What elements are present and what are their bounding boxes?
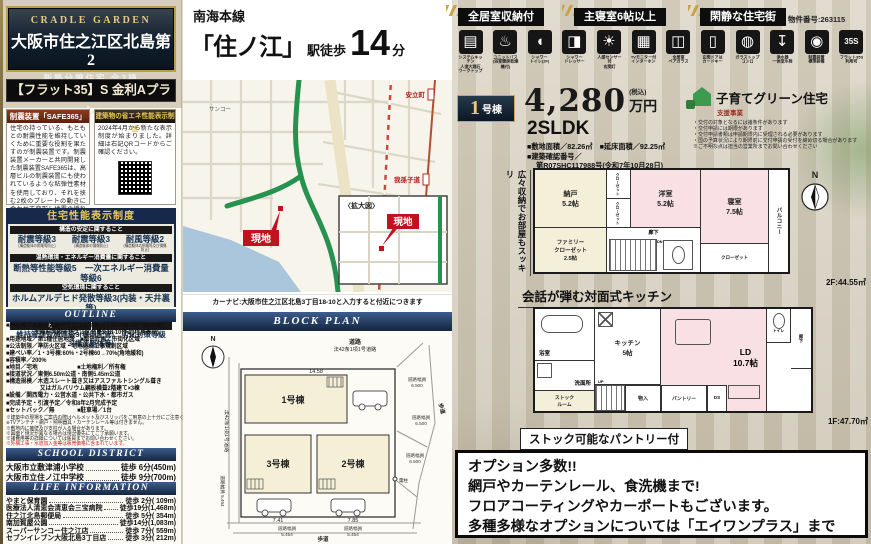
- outline-body: ■所在地／大阪府大阪市住之江区北島三丁目14番7の一部(地番) 大阪府大阪市住之…: [6, 323, 178, 416]
- pair-glass-icon: ◫: [666, 30, 690, 54]
- dim-top: 14.58: [309, 369, 323, 375]
- feature-shower-dresser: ◨シャワー ドレッサー: [559, 30, 590, 76]
- outline-line: 又はガルバリウム鋼板横葺2階建て×3棟: [6, 386, 168, 393]
- flat35s-icon: 35S: [839, 30, 863, 54]
- outline-line: ■地目／宅地 ■土地権利／所有権: [6, 365, 168, 372]
- qr-code: [118, 161, 152, 195]
- stairs-1f: UP: [595, 385, 625, 411]
- feature-sensor-light: ☀人感センサー付 玄関灯: [594, 30, 625, 76]
- toilet-label: トイレ: [767, 329, 790, 334]
- road-top-label: 道路: [349, 338, 362, 346]
- faucet-icon: ↧: [770, 30, 794, 54]
- outline-notes: ※建築中の現場をご案内の際はヘルメット及びスリッパをご用意の上十分にご注意くださ…: [6, 416, 178, 448]
- station-label-anryucho: 安立町: [406, 90, 426, 99]
- building-2-label: 2号棟: [341, 458, 365, 469]
- outline-line: ■完成予定・引渡予定／令和8年2月完成予定: [6, 401, 168, 408]
- station-label-abikomichi: 我孫子道: [394, 175, 421, 184]
- outline-line: ■構造規模／木造スレート葺き又はアスファルトシングル葺き: [6, 379, 168, 386]
- feature-label: ガラストップ コンロ: [734, 55, 761, 64]
- utility-pole-label: 電柱: [399, 477, 408, 484]
- life-row: セブンイレブン大阪北島3丁目店徒歩 3分( 212m): [6, 535, 176, 543]
- school-district-header: SCHOOL DISTRICT: [6, 448, 176, 461]
- hall-2f: 廊下 DN: [607, 228, 701, 272]
- feature-label: フラット35S 利用可: [838, 55, 865, 64]
- outline-line: ■用途地域／第1種住居地域 ■都市計画／市街化区域: [6, 337, 168, 344]
- svg-text:道路幅員 5.454: 道路幅員 5.454: [219, 475, 226, 507]
- feature-glass-top-stove: ◍ガラストップ コンロ: [732, 30, 763, 76]
- performance-grades: 耐震等級3(構造躯体の倒壊等防止) 耐震等級3(構造躯体の損傷防止) 耐風等級2…: [10, 235, 172, 253]
- leader-dots: [86, 480, 119, 481]
- hall-label: 廊下: [607, 229, 700, 236]
- room-toilet-1f: トイレ: [767, 309, 791, 343]
- toilet-icon: ◖: [528, 30, 552, 54]
- feature-flat35s: 35Sフラット35S 利用可: [836, 30, 867, 76]
- feature-shower-toilet: ◖シャワー トイレ(2F): [524, 30, 555, 76]
- map-inset: 〈拡大図〉 現地: [339, 196, 447, 284]
- options-line: オプション多数!!: [468, 457, 855, 477]
- plan2f-caption-vertical: 広々収納でお部屋もスッキリ: [504, 170, 531, 276]
- property-title: 大阪市住之江区北島第2: [8, 28, 174, 70]
- leader-dots: [108, 539, 123, 540]
- performance-header: 住宅性能表示制度: [8, 210, 174, 224]
- feature-damper: ◉制震装置 標準装備: [801, 30, 832, 76]
- stove-icon: ◍: [736, 30, 760, 54]
- road-left-law-label: 法42条1項1号道路: [223, 410, 231, 453]
- building-1-label: 1号棟: [281, 394, 305, 405]
- feature-label: ユニットバス (浴室暖房乾燥機付): [492, 55, 519, 69]
- price: 4,280 (税込) 万円: [524, 86, 657, 117]
- room-stock: ストック ルーム: [535, 391, 595, 411]
- station-name: 「住ノ江」: [190, 27, 305, 62]
- outline-line: ■設備／関西電力・公営水道・公共下水・都市ガス: [6, 393, 168, 400]
- sidewalk-label: 歩道: [317, 535, 329, 543]
- map-poi-label: サンコー: [209, 106, 231, 113]
- stairs-2f: [609, 239, 657, 271]
- options-line: フロアコーティングやカーポートもございます。: [468, 497, 855, 517]
- feature-label: システムキッチン 人造大理石 ワークトップ: [457, 55, 484, 73]
- outline-line: ■接道状況／東側6.50m公道・南側5.45m公道: [6, 372, 168, 379]
- toilet-bowl-icon: [672, 246, 685, 264]
- room-nando: 納戸 5.2帖: [535, 170, 607, 228]
- svg-text:6.500: 6.500: [411, 383, 423, 388]
- road-top-law-label: 法42条1項1号道路: [334, 345, 377, 353]
- flat35-plan-bar: 【フラット35】S 金利Aプラン: [6, 79, 176, 102]
- performance-bar-structure: 構造の安定に関すること: [10, 226, 172, 234]
- utility-pole-mark: [393, 477, 397, 481]
- kosodate-title: 子育てグリーン住宅: [716, 88, 828, 107]
- grade-item: 耐震等級3(構造躯体の倒壊等防止): [10, 235, 64, 253]
- toilet-bowl-icon: [773, 313, 785, 329]
- plan-compass: N: [798, 168, 832, 214]
- energy-body: 2024年4月から新たな表示制度が始まりました。詳細は右記QRコードからご確認く…: [95, 123, 175, 159]
- room-shinshitsu: 寝室 7.5帖: [701, 170, 768, 244]
- feature-water-purifier: ↧浄水器 一体型水栓: [767, 30, 798, 76]
- unit-number: 1: [470, 97, 480, 120]
- room-yoshitsu: 洋室 5.2帖: [631, 170, 701, 228]
- building-3-label: 3号棟: [266, 458, 290, 469]
- room-senmen: 洗面所: [535, 361, 595, 391]
- outline-line: ■建ぺい率／1・3号棟:60%・2号棟60→70%(角地緩和): [6, 351, 168, 358]
- inset-title: 〈拡大図〉: [344, 201, 379, 210]
- outline-line: ■セットバック／無 ■駐車場／1台: [6, 408, 168, 415]
- badge-bedroom: 主寝室6帖以上: [574, 8, 666, 26]
- brand-name: CRADLE GARDEN: [8, 15, 174, 26]
- svg-text:道路幅員: 道路幅員: [412, 414, 431, 421]
- performance-row-thermal: 断熱等性能等級5 一次エネルギー消費量等級6: [10, 263, 172, 283]
- walk-label: 駅徒歩: [307, 40, 346, 59]
- washer-icon: [537, 363, 552, 378]
- outline-line: ■所在地／大阪府大阪市住之江区北島三丁目14番7の一部(地番): [6, 323, 168, 330]
- svg-text:5.454: 5.454: [281, 532, 293, 537]
- life-information-list: やまと保育園徒歩 2分( 109m) 医療法人清恵会清恵会三宝病院徒歩19分(1…: [6, 497, 176, 542]
- station-marker: [423, 174, 429, 185]
- price-unit-block: (税込) 万円: [629, 86, 657, 116]
- damper-info-box: 制震装置「SAFE365」 住宅の持っている、もともとの耐震性能を維持していくた…: [6, 109, 90, 205]
- bath-label: 浴室: [539, 349, 550, 357]
- room-closet-2: クローゼット: [607, 199, 631, 228]
- bathtub-icon: [541, 315, 583, 333]
- card-key-icon: ▯: [701, 30, 725, 54]
- stairs-up-label: UP: [598, 379, 604, 384]
- kosodate-header: 子育てグリーン住宅: [693, 88, 869, 107]
- floor-plan-1f: 浴室 洗面所 ストック ルーム キッチン 5帖 LD 10.7帖 トイレ 廊下 …: [533, 307, 813, 413]
- energy-label-box: 建築物の省エネ性能表示制度 2024年4月から新たな表示制度が始まりました。詳細…: [94, 109, 176, 205]
- ld-label: LD 10.7帖: [733, 347, 758, 369]
- outline-line: ■公法制限／準防火区域・宅地造成工事規制区域: [6, 344, 168, 351]
- grade-sub: (構造躯体の損傷防止): [68, 244, 114, 249]
- feature-label: シャワー ドレッサー: [561, 55, 588, 64]
- kitchen-icon: ▤: [459, 30, 483, 54]
- site-floor-area: ■敷地面積／82.26㎡ ■延床面積／92.25㎡: [527, 142, 665, 152]
- green-house-icon: [693, 94, 711, 106]
- performance-body: 構造の安定に関すること 耐震等級3(構造躯体の倒壊等防止) 耐震等級3(構造躯体…: [8, 224, 174, 307]
- life-information-header: LIFE INFORMATION: [6, 482, 176, 495]
- poi-distance: 徒歩 3分( 212m): [125, 532, 176, 542]
- property-number: 物件番号:263115: [788, 14, 845, 25]
- minutes-unit: 分: [392, 40, 405, 59]
- brand-panel: CRADLE GARDEN 大阪市住之江区北島第2 新築分譲住宅 全3棟: [6, 6, 176, 72]
- grade-sub: (構造躯体の倒壊等防止): [14, 244, 60, 249]
- room-closet-3: クローゼット: [701, 244, 768, 272]
- hall-1f: 廊下: [791, 309, 811, 369]
- area-2f: 2F:44.55㎡: [800, 277, 866, 288]
- feature-label: 浄水器 一体型水栓: [769, 55, 796, 64]
- sensor-light-icon: ☀: [597, 30, 621, 54]
- feature-icon-row: ▤システムキッチン 人造大理石 ワークトップ ♨ユニットバス (浴室暖房乾燥機付…: [455, 30, 867, 76]
- balcony: バルコニー: [768, 170, 788, 272]
- svg-text:道路幅員: 道路幅員: [344, 525, 363, 532]
- feature-label: TVモニター付 インターホン: [630, 55, 657, 64]
- performance-panel: 住宅性能表示制度 構造の安定に関すること 耐震等級3(構造躯体の倒壊等防止) 耐…: [6, 208, 176, 307]
- badge-quiet-area: 閑静な住宅街: [700, 8, 786, 26]
- map-caption: カーナビ:大阪市住之江区北島3丁目18-10と入力すると付近につきます: [183, 294, 452, 309]
- compass-n: N: [210, 336, 215, 343]
- svg-text:道路幅員: 道路幅員: [408, 376, 427, 383]
- unit-suffix: 号棟: [482, 101, 502, 116]
- grade-sub: (構造躯体の倒壊等及び損傷防止): [122, 244, 168, 253]
- outline-line: ■容積率／200%: [6, 358, 168, 365]
- green-mini-badge: [686, 100, 695, 109]
- senmen-label: 洗面所: [574, 379, 591, 387]
- tax-included-label: (税込): [629, 86, 646, 96]
- floor-layout: 2SLDK: [527, 118, 589, 140]
- damper-header: 制震装置「SAFE365」: [7, 110, 89, 123]
- feature-label: 全居室 ペアガラス: [665, 55, 692, 64]
- room-mono: 物入: [625, 385, 661, 411]
- options-line: 多種多様なオプションについては「エイワンプラス」まで: [468, 517, 855, 537]
- access-map: 安立町 我孫子道 サンコー 現地 〈拡大図〉 現地: [183, 80, 452, 292]
- dim-b2: 7.85: [348, 518, 359, 524]
- price-currency: 万円: [629, 96, 657, 116]
- feature-label: シャワー トイレ(2F): [526, 55, 553, 64]
- dining-table-icon: [675, 319, 711, 345]
- badge-storage: 全居室収納付: [458, 8, 544, 26]
- leader-dots: [104, 509, 117, 510]
- energy-header: 建築物の省エネ性能表示制度: [95, 110, 175, 123]
- feature-label: 人感センサー付 玄関灯: [596, 55, 623, 69]
- room-ds: DS: [707, 385, 727, 411]
- performance-bar-thermal: 温熱環境・エネルギー消費量に関すること: [10, 254, 172, 262]
- performance-bar-air: 空気環境に関すること: [10, 284, 172, 292]
- kosodate-green-block: 子育てグリーン住宅 支援事業 ・交付の対象となるには諸条件があります ・交付申請…: [693, 88, 869, 150]
- kosodate-note: ※ご不明な点は担当の営業所までお問い合わせください: [693, 144, 862, 150]
- sofa-icon: [728, 385, 760, 399]
- note-line-highlight: ※外構工事・水道加入金等は販売価格に含まれています。: [6, 442, 164, 447]
- kosodate-notes: ・交付の対象となるには諸条件があります ・交付申請には期限があります ・交付申請…: [693, 120, 869, 150]
- site-label: 現地: [251, 232, 271, 245]
- kitchen-caption: 会話が弾む対面式キッチン: [518, 286, 676, 308]
- toilet-2f: [663, 240, 693, 270]
- page-edge-decor: [0, 0, 3, 544]
- room-closet-1: クローゼット: [607, 170, 631, 199]
- svg-text:道路幅員: 道路幅員: [278, 525, 297, 532]
- grade-item: 耐風等級2(構造躯体の倒壊等及び損傷防止): [118, 235, 172, 253]
- outline-header: OUTLINE: [6, 309, 176, 322]
- bath-icon: ♨: [493, 30, 517, 54]
- feature-pair-glass: ◫全居室 ペアガラス: [663, 30, 694, 76]
- feature-card-key: ▯玄関ドアは カードキー: [697, 30, 728, 76]
- stairs-dn-label: DN: [657, 240, 662, 244]
- block-plan: N 道路 法42条1項1号道路 法42条1項1号道路 1号棟 3号棟 2号棟 1…: [183, 331, 452, 544]
- leader-dots: [63, 517, 123, 518]
- room-family-closet: ファミリー クローゼット 2.5帖: [535, 228, 607, 272]
- feature-tv-intercom: ▦TVモニター付 インターホン: [628, 30, 659, 76]
- svg-text:6.500: 6.500: [409, 459, 421, 464]
- feature-label: 玄関ドアは カードキー: [700, 55, 727, 64]
- feature-label: 制震装置 標準装備: [803, 55, 830, 64]
- svg-text:5.454: 5.454: [347, 532, 359, 537]
- grade-item: 耐震等級3(構造躯体の損傷防止): [64, 235, 118, 253]
- station-access: 「住ノ江」 駅徒歩 14 分: [190, 22, 450, 64]
- room-kitchen: キッチン 5帖: [595, 309, 661, 385]
- floor-plan-2f: 納戸 5.2帖 クローゼット クローゼット 洋室 5.2帖 寝室 7.5帖 クロ…: [533, 168, 790, 274]
- damper-badge-icon: ◉: [805, 30, 829, 54]
- room-pantry: パントリー: [661, 385, 707, 411]
- outline-line: 大阪府大阪市住之江区北島3-18-10付近(住居表示): [6, 330, 168, 337]
- area-1f: 1F:47.70㎡: [806, 416, 868, 427]
- unit-number-badge: 1 号棟: [457, 95, 515, 122]
- room-bath: 浴室: [535, 309, 595, 361]
- school-district-list: 大阪市立敷津浦小学校徒歩 6分(450m) 大阪市立住ノ江中学校徒歩 9分(70…: [6, 463, 176, 483]
- station-marker: [428, 89, 434, 100]
- price-amount: 4,280: [524, 86, 626, 117]
- inset-site-label: 現地: [393, 216, 413, 228]
- options-line: 網戸やカーテンレール、食洗機まで!: [468, 477, 855, 497]
- dim-b3: 7.41: [273, 518, 284, 524]
- pantry-caption: ストック可能なパントリー付: [520, 428, 688, 450]
- block-plan-header: BLOCK PLAN: [183, 312, 452, 331]
- svg-text:6.500: 6.500: [415, 421, 427, 426]
- poi-name: セブンイレブン大阪北島3丁目店: [6, 532, 106, 542]
- feature-system-kitchen: ▤システムキッチン 人造大理石 ワークトップ: [455, 30, 486, 76]
- intercom-icon: ▦: [632, 30, 656, 54]
- svg-text:N: N: [812, 170, 819, 180]
- feature-unit-bath: ♨ユニットバス (浴室暖房乾燥機付): [490, 30, 521, 76]
- walk-minutes: 14: [350, 22, 390, 64]
- dresser-icon: ◨: [562, 30, 586, 54]
- svg-text:道路幅員: 道路幅員: [406, 452, 425, 459]
- real-estate-flyer: { "left": { "brand": "CRADLE GARDEN", "t…: [0, 0, 871, 544]
- kosodate-subtitle: 支援事業: [717, 107, 869, 117]
- leader-dots: [86, 470, 119, 471]
- options-box: オプション多数!! 網戸やカーテンレール、食洗機まで! フロアコーティングやカー…: [455, 450, 868, 538]
